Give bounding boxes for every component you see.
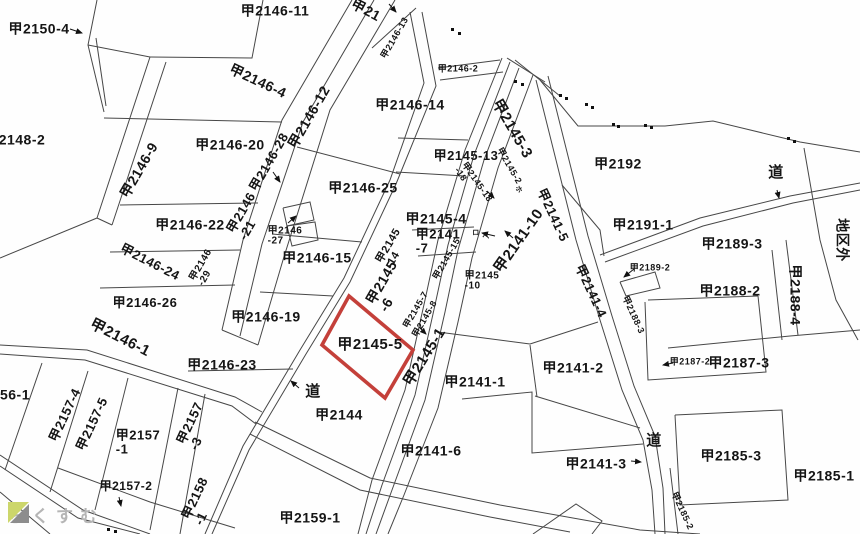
parcel-label-甲2187-3: 甲2187-3	[708, 356, 769, 371]
parcel-label-甲2146-2: 甲2146-2	[438, 64, 479, 73]
parcel-label-ヘ: ヘ	[482, 233, 490, 240]
parcel-label-甲2141-2: 甲2141-2	[542, 361, 603, 376]
parcel-label-甲2150-4: 甲2150-4	[8, 22, 69, 37]
parcel-label-甲2146-19: 甲2146-19	[231, 310, 300, 325]
parcel-label-甲2157-1: 甲2157-1	[116, 428, 160, 455]
parcel-label-甲2185-3: 甲2185-3	[700, 449, 761, 464]
parcel-label-道: 道	[305, 384, 321, 400]
parcel-label-甲2188-2: 甲2188-2	[699, 284, 760, 299]
parcel-label-道: 道	[768, 165, 784, 181]
parcel-label-甲2141-6: 甲2141-6	[400, 444, 461, 459]
parcel-label-甲2141-3: 甲2141-3	[565, 457, 626, 472]
cadastral-map: 甲2150-42148-2甲2146-11甲21甲2146-13甲2146-2甲…	[0, 0, 860, 534]
parcel-label-甲2145-10: 甲2145-10	[465, 272, 500, 293]
parcel-label-甲2146-11: 甲2146-11	[241, 4, 310, 19]
parcel-label-甲2145-4: 甲2145-4	[405, 212, 466, 227]
parcel-label-甲2146-14: 甲2146-14	[375, 98, 444, 113]
parcel-label-甲2146-27: 甲2146-27	[268, 227, 303, 248]
watermark: らくすむ	[8, 502, 104, 527]
parcel-label-甲2189-2: 甲2189-2	[630, 263, 671, 272]
rakusumu-logo-icon	[8, 502, 29, 523]
parcel-label-甲2192: 甲2192	[594, 157, 642, 172]
parcel-label-甲2189-3: 甲2189-3	[701, 237, 762, 252]
parcel-label-甲2146-23: 甲2146-23	[187, 358, 256, 373]
parcel-label-地区外: 地区外	[835, 218, 850, 262]
parcel-label-甲2141-1: 甲2141-1	[444, 375, 505, 390]
parcel-label-甲2191-1: 甲2191-1	[612, 218, 673, 233]
parcel-label-ロ: ロ	[472, 229, 480, 236]
parcel-label-甲2146-26: 甲2146-26	[113, 296, 178, 310]
parcel-label-甲2187-2: 甲2187-2	[670, 357, 711, 366]
parcel-label-甲2188-4: 甲2188-4	[788, 264, 803, 325]
parcel-label-甲2146-25: 甲2146-25	[328, 181, 397, 196]
parcel-label-甲2157-2: 甲2157-2	[100, 480, 153, 492]
parcel-label-甲2145-5: 甲2145-5	[337, 337, 402, 353]
parcel-label-甲2146-15: 甲2146-15	[282, 251, 351, 266]
parcel-label-甲2144: 甲2144	[315, 408, 363, 423]
parcel-label-2148-2: 2148-2	[0, 133, 45, 148]
parcel-label-56-1: 56-1	[0, 388, 30, 403]
parcel-label-甲2159-1: 甲2159-1	[279, 511, 340, 526]
parcel-label-道: 道	[646, 433, 662, 449]
parcel-label-甲2185-1: 甲2185-1	[793, 469, 854, 484]
parcel-label-甲2146-22: 甲2146-22	[155, 218, 224, 233]
parcel-label-甲2146-20: 甲2146-20	[195, 138, 264, 153]
